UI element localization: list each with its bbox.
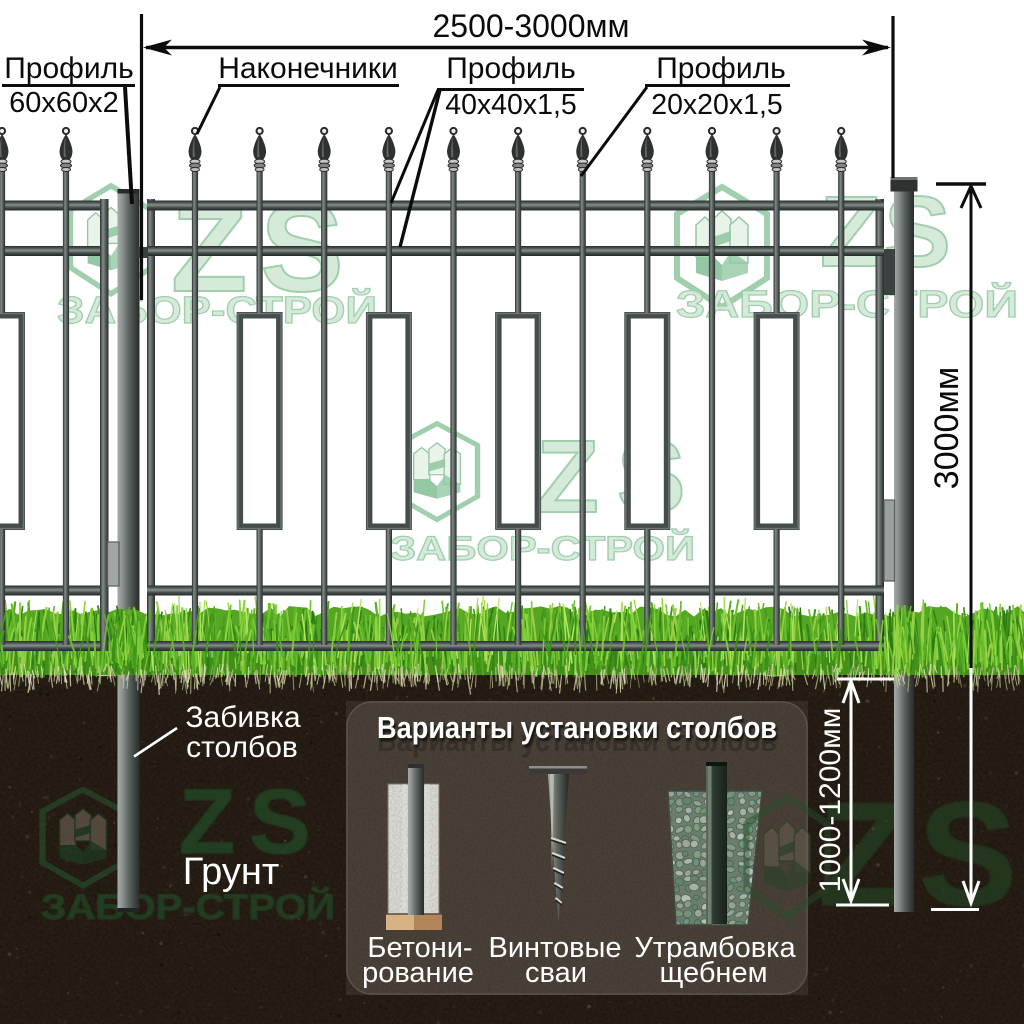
svg-text:ЗАБОР-СТРОЙ: ЗАБОР-СТРОЙ xyxy=(41,887,335,927)
svg-text:рование: рование xyxy=(362,957,474,989)
svg-text:сваи: сваи xyxy=(525,957,587,989)
svg-text:Варианты установки столбов: Варианты установки столбов xyxy=(377,710,777,745)
svg-text:1000-1200мм: 1000-1200мм xyxy=(814,708,847,893)
svg-text:Забивка: Забивка xyxy=(185,701,300,734)
svg-text:2500-3000мм: 2500-3000мм xyxy=(432,8,629,44)
svg-text:3000мм: 3000мм xyxy=(928,367,966,489)
svg-text:Профиль: Профиль xyxy=(446,52,576,85)
svg-text:40х40х1,5: 40х40х1,5 xyxy=(445,89,577,121)
svg-text:Профиль: Профиль xyxy=(656,52,786,85)
svg-text:60х60х2: 60х60х2 xyxy=(9,87,119,119)
svg-text:Грунт: Грунт xyxy=(183,851,280,893)
svg-text:ZS: ZS xyxy=(536,419,704,534)
svg-text:Наконечники: Наконечники xyxy=(218,52,398,85)
svg-text:ЗАБОР-СТРОЙ: ЗАБОР-СТРОЙ xyxy=(676,281,1018,326)
svg-text:щебнем: щебнем xyxy=(659,957,767,989)
svg-text:Профиль: Профиль xyxy=(4,52,134,85)
svg-text:ZS: ZS xyxy=(818,772,1024,937)
svg-text:столбов: столбов xyxy=(186,731,298,764)
svg-text:20х20х1,5: 20х20х1,5 xyxy=(651,89,783,121)
